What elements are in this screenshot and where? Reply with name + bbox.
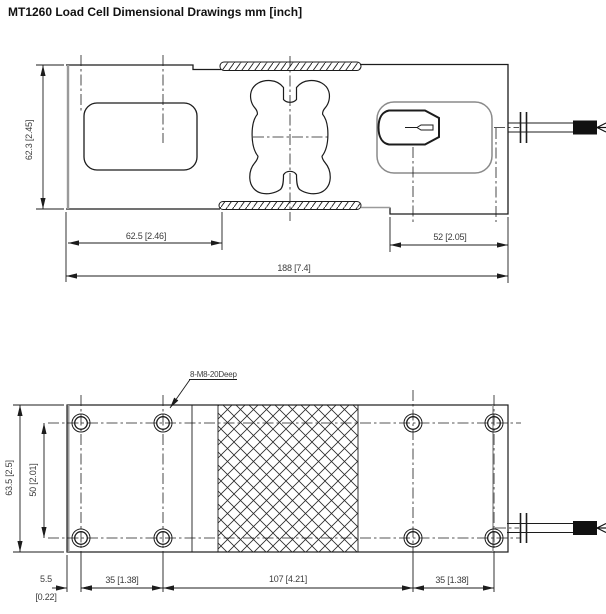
thread-note-leader xyxy=(170,380,237,409)
knurled-center-section xyxy=(218,405,358,552)
dim-hole-span-right: 35 [1.38] xyxy=(435,575,468,585)
pocket-arrow-icon xyxy=(405,125,433,130)
cable-plan xyxy=(507,513,606,543)
dim-plan-width: 63.5 [2.5] xyxy=(4,460,14,496)
cable-side xyxy=(508,112,606,143)
cable-sheath xyxy=(573,521,597,535)
left-pocket-cutout xyxy=(84,103,197,170)
drawing-page: MT1260 Load Cell Dimensional Drawings mm… xyxy=(0,0,606,614)
plan-view: 8-M8-20Deep xyxy=(4,370,606,602)
cable-sheath xyxy=(573,121,597,135)
dim-side-height: 62.3 [2.45] xyxy=(24,120,34,160)
side-view-dimensions xyxy=(36,65,508,283)
dim-edge-offset-inch: [0.22] xyxy=(35,592,56,602)
top-cover-strip xyxy=(220,62,361,71)
side-view-outline xyxy=(66,65,508,215)
thread-note: 8-M8-20Deep xyxy=(190,370,237,379)
dim-hole-span-left: 35 [1.38] xyxy=(105,575,138,585)
dimensional-drawing: 62.3 [2.45] 62.5 [2.46] 52 [2.05] 188 [7… xyxy=(0,0,606,614)
side-view-centerlines xyxy=(81,55,519,222)
dim-side-right-section: 52 [2.05] xyxy=(433,232,466,242)
dim-edge-offset-mm: 5.5 xyxy=(40,574,52,584)
page-title: MT1260 Load Cell Dimensional Drawings mm… xyxy=(8,5,302,19)
right-cover-plate xyxy=(377,102,492,173)
dim-hole-span-center: 107 [4.21] xyxy=(269,574,307,584)
side-view: 62.3 [2.45] 62.5 [2.46] 52 [2.05] 188 [7… xyxy=(24,55,606,283)
dim-plan-hole-rows: 50 [2.01] xyxy=(28,463,38,496)
dim-side-overall: 188 [7.4] xyxy=(277,263,310,273)
dim-side-left-section: 62.5 [2.46] xyxy=(126,231,166,241)
